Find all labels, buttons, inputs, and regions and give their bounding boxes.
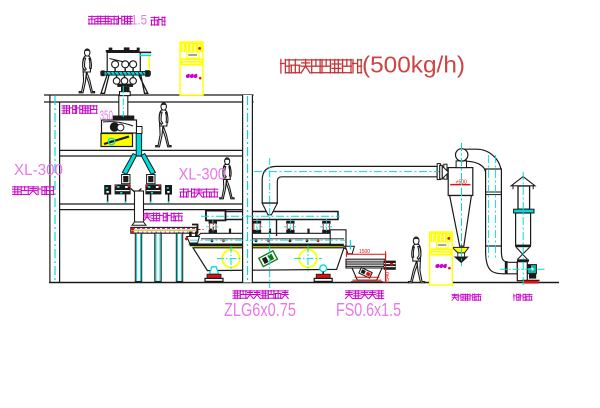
svg-text:FS0.6x1.5: FS0.6x1.5 (336, 299, 401, 320)
svg-text:ZLG6x0.75: ZLG6x0.75 (224, 299, 296, 320)
svg-text:1500: 1500 (359, 249, 370, 255)
svg-text:1.5: 1.5 (131, 12, 147, 28)
svg-text:XL-300: XL-300 (14, 162, 63, 179)
svg-text:350: 350 (100, 107, 114, 123)
svg-text:(500kg/h): (500kg/h) (362, 52, 465, 78)
svg-text:XL-300: XL-300 (179, 165, 227, 184)
